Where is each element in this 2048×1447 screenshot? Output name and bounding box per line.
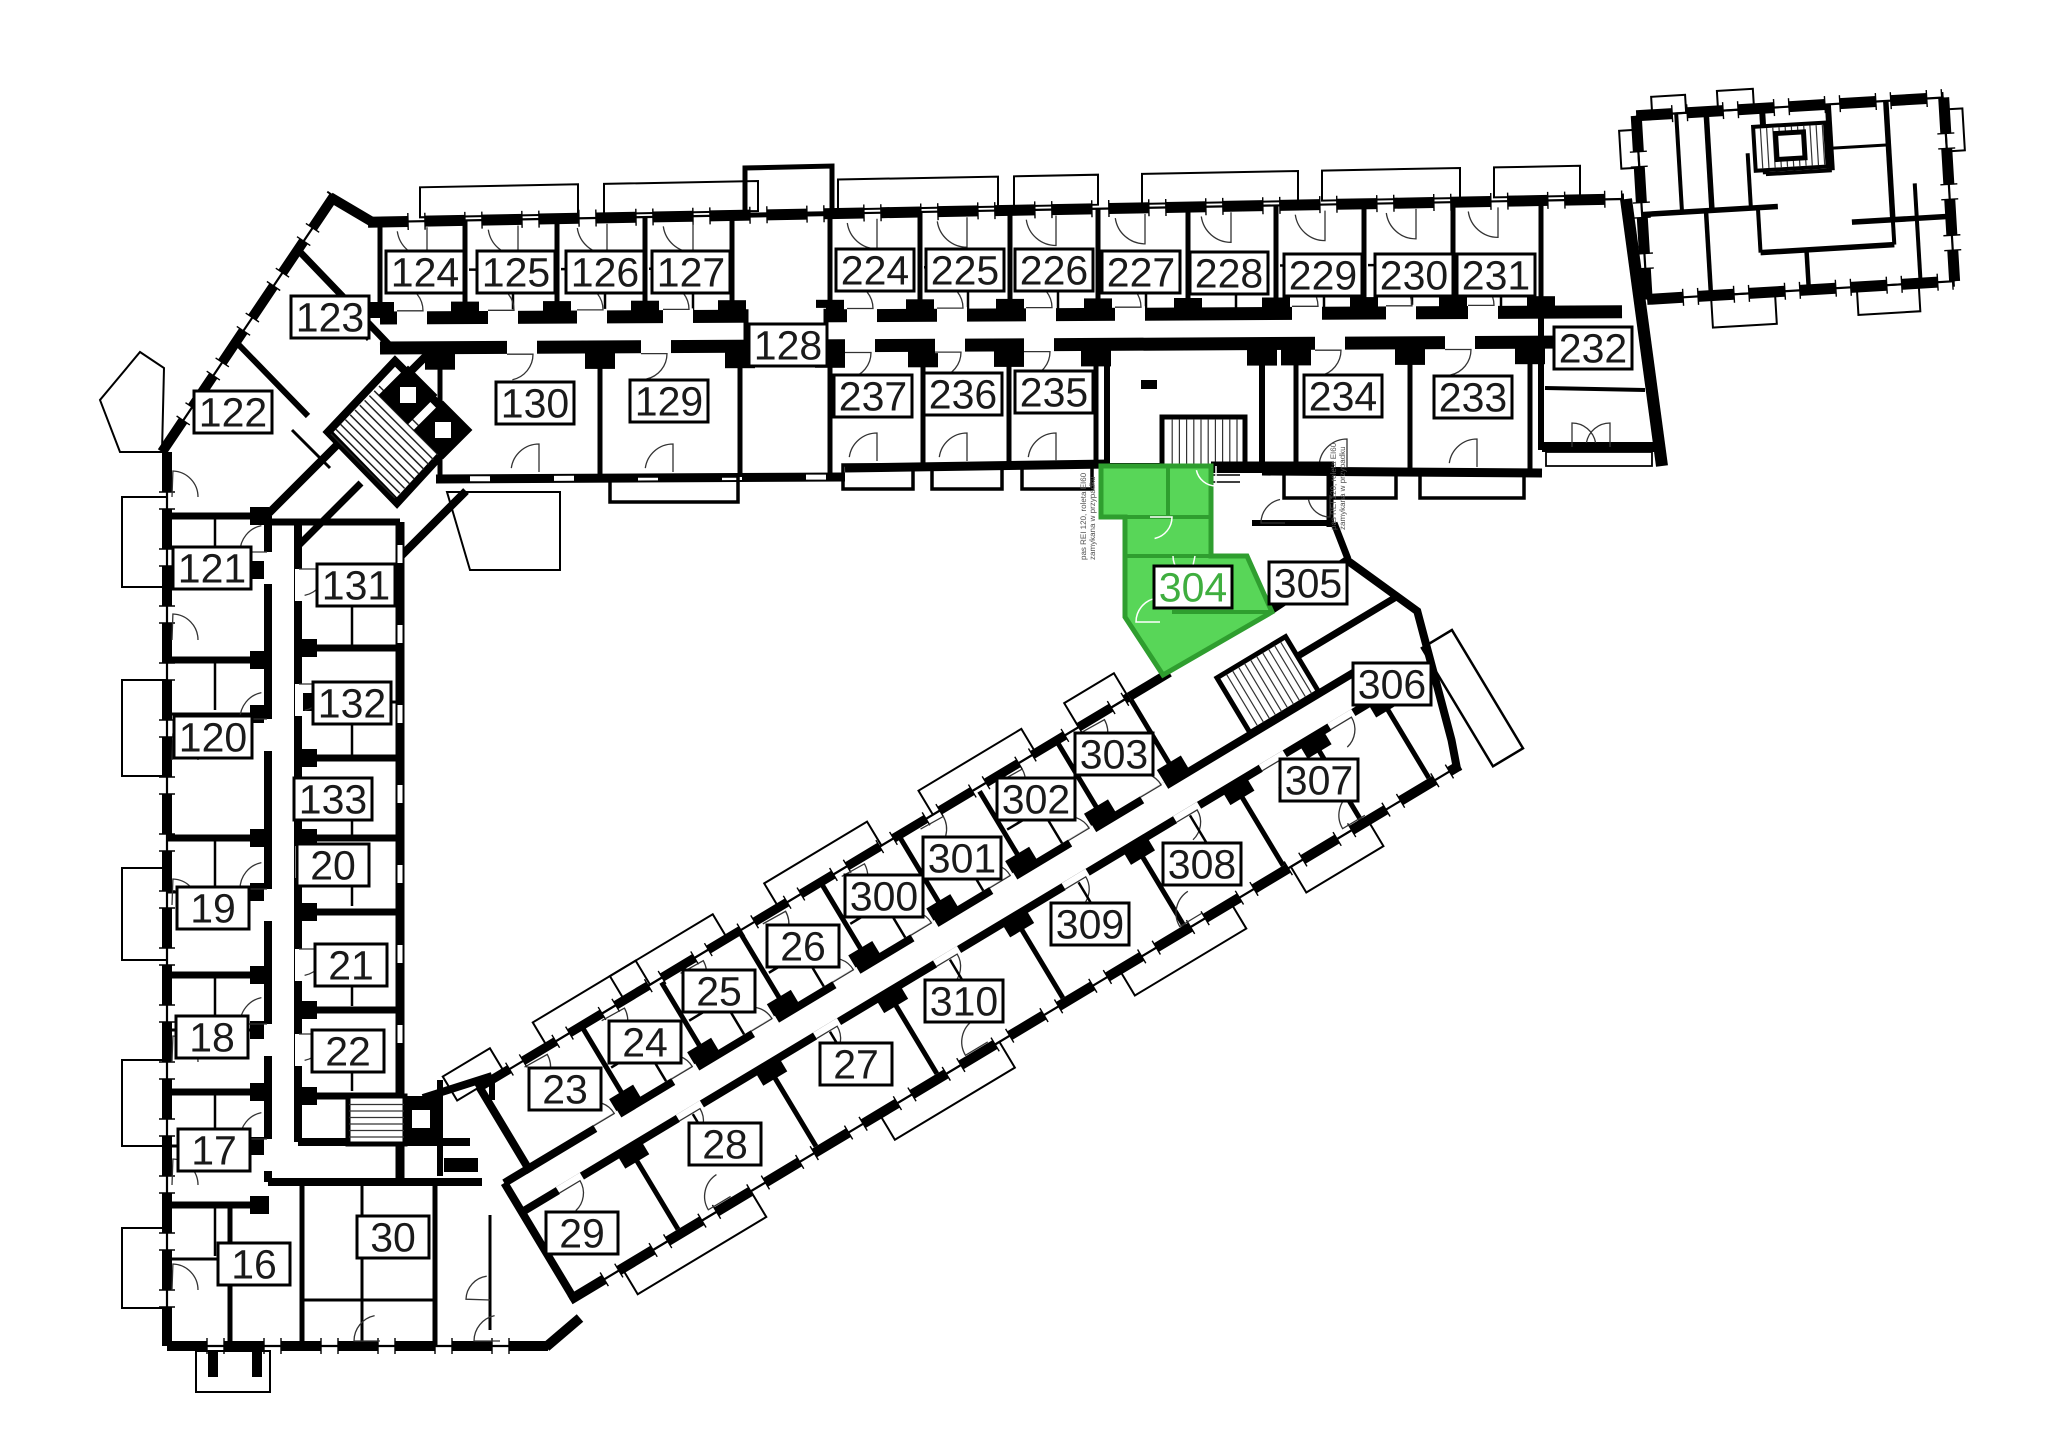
svg-text:28: 28 [702,1122,748,1168]
svg-text:22: 22 [325,1029,371,1075]
svg-text:233: 233 [1439,375,1507,421]
svg-text:25: 25 [696,969,742,1015]
svg-text:125: 125 [482,250,550,296]
svg-text:129: 129 [635,379,703,425]
svg-text:23: 23 [542,1067,588,1113]
svg-text:26: 26 [780,924,826,970]
svg-text:226: 226 [1020,248,1088,294]
svg-text:304: 304 [1159,565,1227,611]
svg-text:237: 237 [839,374,907,420]
svg-text:30: 30 [370,1215,416,1261]
svg-text:307: 307 [1285,758,1353,804]
svg-text:19: 19 [190,886,236,932]
svg-text:132: 132 [318,681,386,727]
svg-text:133: 133 [299,777,367,823]
svg-text:21: 21 [328,943,374,989]
svg-text:123: 123 [296,295,364,341]
svg-text:305: 305 [1274,561,1342,607]
svg-text:232: 232 [1559,326,1627,372]
svg-text:16: 16 [231,1242,277,1288]
svg-text:18: 18 [189,1015,235,1061]
svg-text:302: 302 [1002,777,1070,823]
svg-text:24: 24 [622,1020,668,1066]
svg-text:131: 131 [322,563,390,609]
svg-text:303: 303 [1080,732,1148,778]
svg-text:130: 130 [501,381,569,427]
svg-text:124: 124 [391,250,459,296]
svg-text:225: 225 [931,248,999,294]
svg-text:227: 227 [1107,250,1175,296]
svg-text:229: 229 [1289,253,1357,299]
svg-text:231: 231 [1462,253,1530,299]
svg-text:122: 122 [199,390,267,436]
svg-text:128: 128 [754,323,822,369]
svg-text:120: 120 [179,715,247,761]
svg-text:27: 27 [833,1042,879,1088]
svg-text:121: 121 [178,546,246,592]
svg-text:309: 309 [1056,902,1124,948]
svg-text:306: 306 [1358,662,1426,708]
svg-text:pas REI 120, roleta EI60: pas REI 120, roleta EI60 [1079,472,1088,560]
svg-text:230: 230 [1380,253,1448,299]
svg-text:235: 235 [1020,370,1088,416]
svg-text:pas REI 120, roleta EI60: pas REI 120, roleta EI60 [1329,442,1338,530]
svg-text:308: 308 [1168,842,1236,888]
svg-text:zamykana w przypadku: zamykana w przypadku [1338,446,1347,530]
svg-text:126: 126 [571,250,639,296]
svg-text:127: 127 [657,250,725,296]
svg-text:20: 20 [310,843,356,889]
svg-text:224: 224 [841,248,909,294]
svg-text:zamykana w przypadku: zamykana w przypadku [1088,476,1097,560]
svg-text:234: 234 [1309,374,1377,420]
svg-text:300: 300 [850,874,918,920]
svg-text:228: 228 [1195,251,1263,297]
svg-text:301: 301 [928,836,996,882]
svg-text:236: 236 [929,372,997,418]
svg-text:17: 17 [191,1128,237,1174]
svg-text:29: 29 [559,1211,605,1257]
svg-text:310: 310 [930,979,998,1025]
